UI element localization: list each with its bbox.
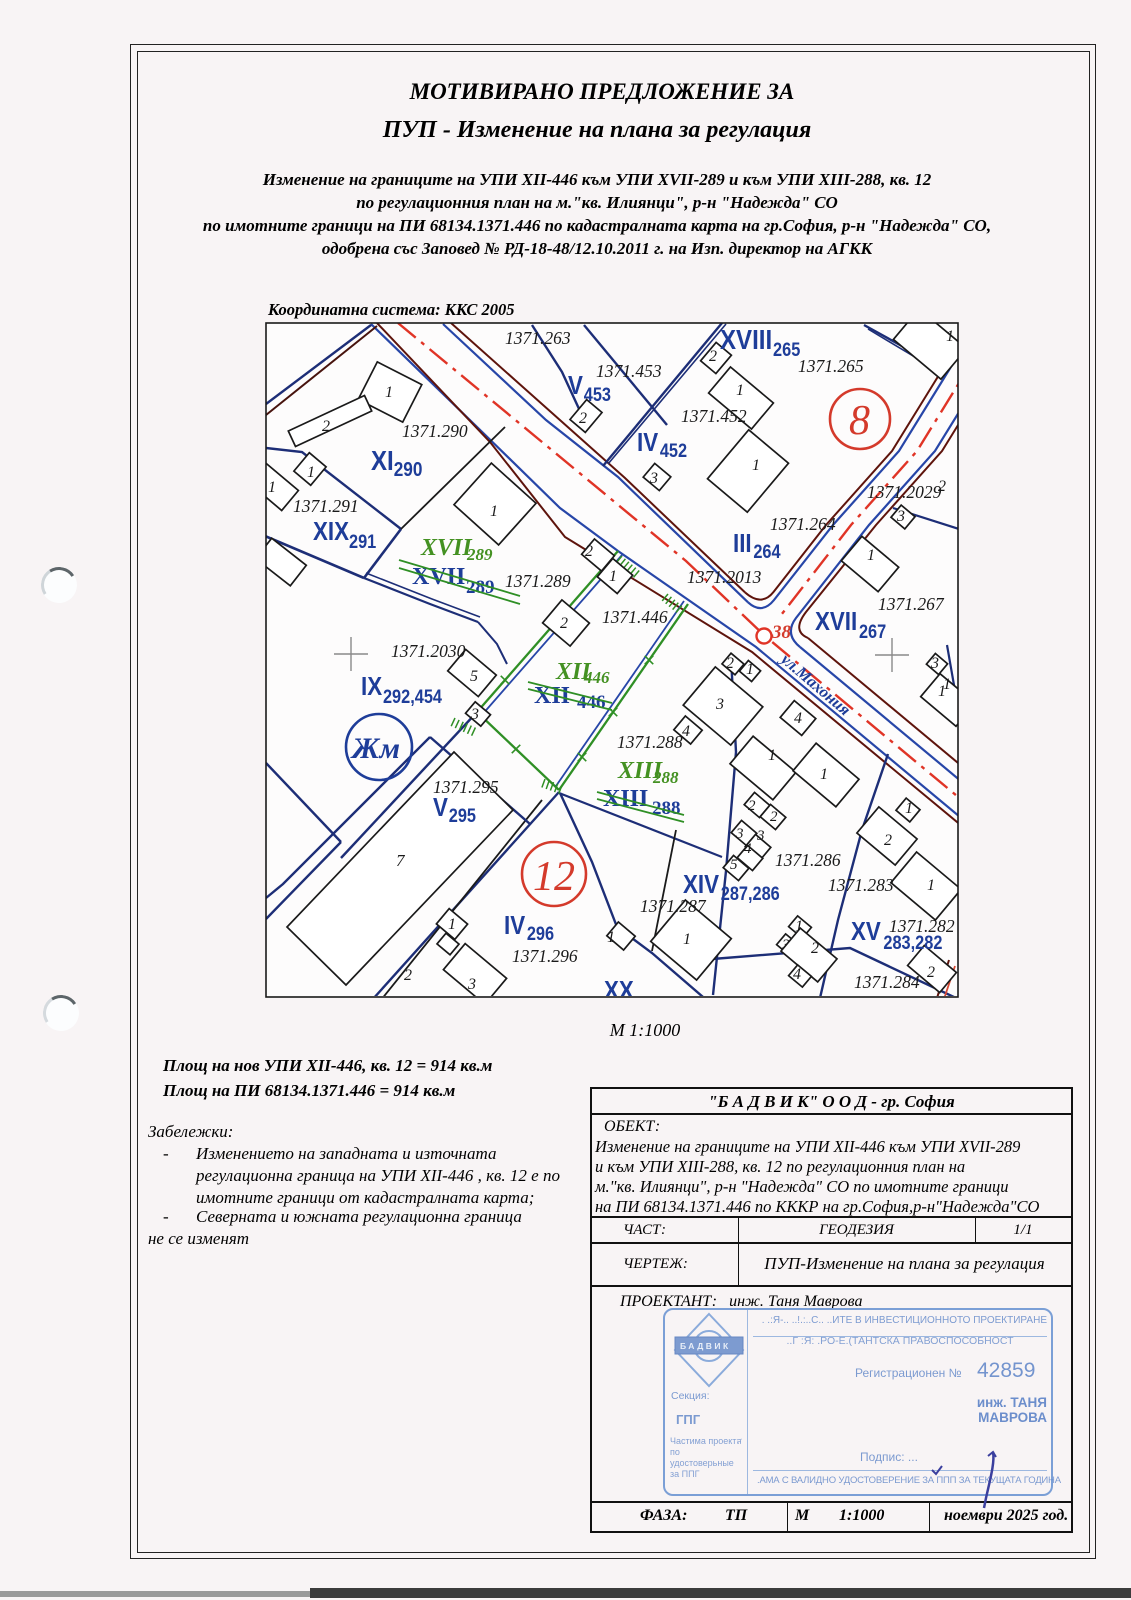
- svg-text:2: 2: [709, 348, 717, 365]
- svg-text:1: 1: [927, 877, 935, 894]
- svg-text:38: 38: [771, 622, 792, 643]
- svg-text:1: 1: [905, 800, 913, 817]
- svg-text:3: 3: [896, 508, 905, 525]
- svg-text:1: 1: [385, 384, 393, 401]
- svg-text:1: 1: [268, 479, 276, 496]
- svg-text:1371.284: 1371.284: [854, 972, 920, 992]
- svg-text:4: 4: [744, 841, 752, 857]
- svg-text:4: 4: [682, 723, 690, 740]
- svg-text:1: 1: [307, 464, 315, 481]
- svg-text:1371.2029: 1371.2029: [867, 482, 942, 502]
- svg-text:1371.265: 1371.265: [798, 356, 864, 376]
- svg-text:2: 2: [811, 940, 819, 957]
- svg-text:XII: XII: [534, 683, 570, 709]
- svg-text:3: 3: [649, 470, 658, 487]
- svg-text:3: 3: [715, 696, 724, 713]
- svg-text:1: 1: [609, 568, 617, 585]
- svg-text:5: 5: [470, 668, 478, 685]
- svg-text:1: 1: [736, 382, 744, 399]
- svg-text:3: 3: [470, 706, 479, 723]
- svg-text:1: 1: [768, 747, 776, 764]
- svg-text:1: 1: [683, 931, 691, 948]
- svg-text:1: 1: [946, 328, 954, 345]
- svg-text:2: 2: [726, 655, 734, 672]
- svg-text:1371.288: 1371.288: [617, 732, 683, 752]
- svg-text:1: 1: [752, 457, 760, 474]
- svg-text:3: 3: [930, 655, 939, 672]
- svg-text:1371.296: 1371.296: [512, 946, 578, 966]
- svg-text:8: 8: [849, 398, 870, 444]
- svg-text:2: 2: [927, 964, 935, 981]
- svg-text:1: 1: [943, 676, 951, 693]
- svg-text:1371.453: 1371.453: [596, 361, 662, 381]
- svg-text:2: 2: [748, 798, 756, 814]
- svg-text:1371.2013: 1371.2013: [687, 567, 762, 587]
- svg-text:3: 3: [735, 826, 744, 842]
- svg-text:1371.286: 1371.286: [775, 850, 841, 870]
- svg-text:1371.446: 1371.446: [602, 607, 668, 627]
- svg-text:288: 288: [652, 768, 679, 787]
- svg-text:2: 2: [938, 478, 946, 495]
- svg-text:1371.267: 1371.267: [878, 594, 945, 614]
- svg-text:1371.289: 1371.289: [505, 571, 571, 591]
- svg-text:3: 3: [756, 828, 765, 844]
- svg-text:2: 2: [560, 615, 568, 632]
- svg-text:1: 1: [867, 547, 875, 564]
- svg-text:4: 4: [794, 710, 802, 727]
- svg-text:2: 2: [585, 543, 593, 560]
- svg-text:1371.264: 1371.264: [770, 514, 836, 534]
- svg-text:3: 3: [467, 976, 476, 993]
- svg-text:2: 2: [770, 809, 778, 825]
- svg-text:XX: XX: [604, 976, 634, 998]
- svg-text:1371.452: 1371.452: [681, 406, 747, 426]
- svg-text:446: 446: [583, 668, 610, 687]
- svg-text:1371.290: 1371.290: [402, 421, 468, 441]
- svg-text:БАДВИК: БАДВИК: [680, 1341, 731, 1351]
- svg-text:2: 2: [884, 832, 892, 849]
- svg-text:5: 5: [730, 857, 738, 873]
- svg-text:4: 4: [793, 966, 801, 983]
- svg-text:1: 1: [490, 503, 498, 520]
- svg-text:1371.263: 1371.263: [505, 328, 571, 348]
- svg-text:1371.283: 1371.283: [828, 875, 894, 895]
- svg-text:Жм: Жм: [350, 732, 400, 765]
- svg-text:1371.291: 1371.291: [293, 496, 359, 516]
- svg-text:1: 1: [448, 916, 456, 933]
- svg-text:12: 12: [533, 854, 575, 900]
- svg-text:289: 289: [466, 545, 493, 564]
- svg-text:2: 2: [579, 410, 587, 427]
- svg-text:1: 1: [820, 766, 828, 783]
- svg-text:1: 1: [607, 929, 615, 946]
- svg-text:1371.2030: 1371.2030: [391, 641, 466, 661]
- svg-text:XVII: XVII: [420, 535, 473, 561]
- svg-text:2: 2: [404, 967, 412, 984]
- svg-text:1: 1: [746, 661, 754, 678]
- svg-text:2: 2: [322, 418, 330, 435]
